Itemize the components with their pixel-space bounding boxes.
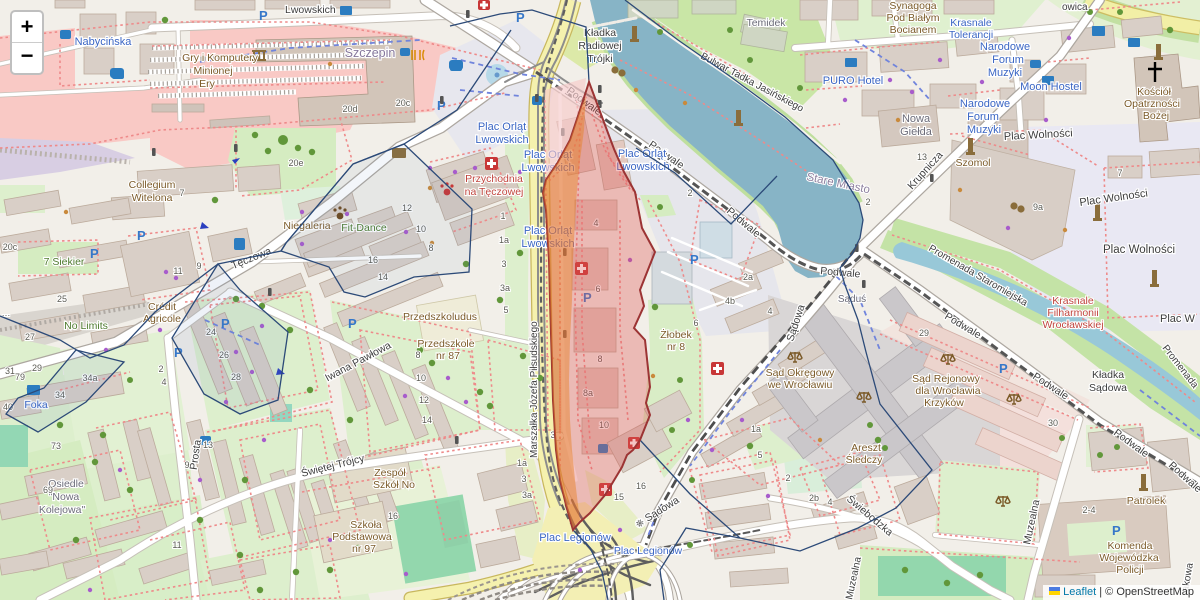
svg-text:Giełda: Giełda [900, 126, 933, 138]
svg-text:Nowa: Nowa [902, 113, 931, 125]
svg-text:30: 30 [1048, 418, 1058, 428]
svg-text:P: P [690, 252, 699, 267]
svg-text:PURO Hotel: PURO Hotel [823, 75, 884, 87]
svg-text:13: 13 [203, 440, 213, 450]
svg-text:Przychodnia: Przychodnia [465, 173, 523, 185]
svg-text:11: 11 [172, 540, 181, 550]
svg-text:73: 73 [51, 441, 61, 451]
svg-text:Areszt: Areszt [851, 442, 881, 454]
svg-text:Radiowej: Radiowej [578, 40, 621, 52]
svg-text:Plac Orląt: Plac Orląt [618, 148, 666, 160]
svg-text:29: 29 [32, 363, 42, 373]
svg-text:25: 25 [57, 294, 67, 304]
svg-text:Filharmonii: Filharmonii [1047, 307, 1098, 319]
svg-text:9: 9 [184, 460, 189, 470]
svg-text:Krasnale: Krasnale [1052, 295, 1094, 307]
svg-text:3a: 3a [522, 490, 532, 500]
svg-text:1: 1 [500, 211, 505, 221]
svg-text:Plac Orląt: Plac Orląt [478, 121, 526, 133]
svg-text:Bożej: Bożej [1143, 110, 1169, 122]
svg-text:P: P [137, 228, 146, 243]
svg-text:na Tęczowej: na Tęczowej [465, 186, 524, 198]
svg-text:7: 7 [1117, 168, 1122, 178]
svg-text:Lwowskich: Lwowskich [475, 134, 528, 146]
svg-text:Kładka: Kładka [1092, 369, 1124, 381]
svg-text:Sąd Okręgowy: Sąd Okręgowy [766, 367, 836, 379]
svg-text:9a: 9a [1033, 202, 1043, 212]
svg-text:Wojewódzka: Wojewódzka [1099, 552, 1158, 564]
svg-text:owica: owica [1062, 2, 1088, 13]
svg-text:Szkół No: Szkół No [373, 479, 415, 491]
svg-text:Narodowe: Narodowe [980, 41, 1030, 53]
svg-text:4b: 4b [725, 296, 735, 306]
svg-text:Bocianem: Bocianem [890, 24, 937, 36]
svg-text:31: 31 [5, 366, 15, 376]
svg-text:5: 5 [503, 305, 508, 315]
svg-text:dla Wrocławia: dla Wrocławia [915, 385, 980, 397]
svg-text:Przedszkoludus: Przedszkoludus [403, 311, 477, 323]
svg-text:Kościół: Kościół [1137, 86, 1172, 98]
svg-text:7: 7 [179, 188, 184, 198]
svg-text:Sądowa: Sądowa [1089, 382, 1127, 394]
svg-text:15: 15 [614, 492, 624, 502]
svg-text:Marszałka Józefa Piłsudskiego: Marszałka Józefa Piłsudskiego [529, 321, 540, 458]
svg-text:Wrocławskiej: Wrocławskiej [1042, 319, 1103, 331]
svg-text:8: 8 [415, 350, 420, 360]
svg-text:20c: 20c [3, 242, 18, 252]
svg-text:P: P [1112, 523, 1121, 538]
svg-text:Osiedle: Osiedle [48, 478, 84, 490]
svg-text:Lwowskich: Lwowskich [285, 4, 336, 16]
svg-text:69: 69 [43, 485, 53, 495]
svg-text:Moon Hostel: Moon Hostel [1020, 81, 1082, 93]
svg-text:Policji: Policji [1116, 564, 1143, 576]
svg-text:2-4: 2-4 [1082, 505, 1095, 515]
svg-text:2: 2 [865, 197, 870, 207]
svg-text:Temidek: Temidek [746, 17, 786, 29]
svg-text:4: 4 [827, 497, 832, 507]
svg-text:20c: 20c [396, 98, 411, 108]
svg-text:12: 12 [419, 395, 429, 405]
svg-text:5: 5 [757, 450, 762, 460]
svg-text:2: 2 [687, 188, 692, 198]
svg-text:16: 16 [388, 511, 398, 521]
svg-text:Plac Legionów: Plac Legionów [539, 532, 611, 544]
svg-text:Ery: Ery [199, 78, 216, 90]
svg-text:Plac W: Plac W [1160, 313, 1195, 325]
svg-text:Szczepin: Szczepin [345, 46, 396, 60]
svg-text:Minionej: Minionej [193, 65, 232, 77]
svg-text:16: 16 [636, 481, 646, 491]
svg-text:29: 29 [919, 328, 929, 338]
svg-text:Muzyki: Muzyki [967, 124, 1001, 136]
svg-text:Krasnale: Krasnale [950, 17, 992, 29]
svg-text:Kolejowa": Kolejowa" [39, 504, 86, 516]
svg-text:Szkoła: Szkoła [350, 519, 382, 531]
svg-text:P: P [999, 361, 1008, 376]
svg-text:Forum: Forum [992, 54, 1024, 66]
svg-text:20e: 20e [288, 158, 303, 168]
svg-text:14: 14 [422, 415, 432, 425]
svg-text:Tolerancji: Tolerancji [949, 29, 993, 41]
svg-text:Szomol: Szomol [955, 157, 990, 169]
svg-text:P: P [90, 246, 99, 261]
svg-text:Komenda: Komenda [1108, 540, 1153, 552]
svg-text:79: 79 [15, 372, 25, 382]
svg-text:nr 87: nr 87 [436, 350, 460, 362]
svg-text:Muzyki: Muzyki [988, 67, 1022, 79]
svg-text:Krzyków: Krzyków [924, 397, 964, 409]
svg-text:P: P [259, 8, 268, 23]
svg-text:4: 4 [767, 306, 772, 316]
svg-text:"Nowa: "Nowa [49, 491, 80, 503]
svg-text:Witelona: Witelona [132, 192, 173, 204]
svg-text:2: 2 [158, 364, 163, 374]
svg-text:Kładka: Kładka [584, 27, 616, 39]
svg-text:Żłobek: Żłobek [660, 328, 692, 341]
svg-text:Nabycińska: Nabycińska [75, 36, 133, 48]
svg-text:P: P [348, 316, 357, 331]
svg-text:3a: 3a [500, 283, 510, 293]
svg-text:we Wrocławiu: we Wrocławiu [767, 379, 833, 391]
svg-text:6: 6 [693, 318, 698, 328]
svg-text:Forum: Forum [967, 111, 999, 123]
svg-text:Przedszkole: Przedszkole [417, 338, 474, 350]
svg-text:3: 3 [521, 474, 526, 484]
svg-text:Sąd Rejonowy: Sąd Rejonowy [912, 373, 980, 385]
svg-text:10: 10 [416, 373, 426, 383]
svg-text:27: 27 [25, 332, 35, 342]
svg-text:20d: 20d [342, 104, 357, 114]
svg-text:Śledczy: Śledczy [846, 453, 884, 466]
svg-text:Trójki: Trójki [587, 53, 612, 65]
svg-text:2: 2 [785, 473, 790, 483]
svg-text:11: 11 [173, 266, 182, 276]
svg-text:2a: 2a [743, 272, 753, 282]
svg-text:2b: 2b [809, 493, 819, 503]
svg-text:Synagoga: Synagoga [889, 0, 936, 12]
svg-text:Patrolek: Patrolek [1127, 495, 1166, 507]
svg-text:nr 8: nr 8 [667, 341, 685, 353]
svg-text:9: 9 [196, 261, 201, 271]
svg-text:Opatrzności: Opatrzności [1124, 98, 1180, 110]
svg-text:7 Siekier: 7 Siekier [44, 256, 85, 268]
svg-text:Narodowe: Narodowe [960, 98, 1010, 110]
svg-text:1a: 1a [499, 235, 509, 245]
svg-text:1a: 1a [751, 424, 761, 434]
svg-text:Collegium: Collegium [129, 179, 176, 191]
svg-text:3: 3 [501, 259, 506, 269]
svg-text:Gry i Komputery: Gry i Komputery [182, 52, 259, 64]
svg-text:nr 97: nr 97 [352, 543, 376, 555]
svg-text:13: 13 [917, 152, 927, 162]
svg-text:4: 4 [161, 377, 166, 387]
svg-text:Podstawowa: Podstawowa [332, 531, 392, 543]
svg-text:Pod Białym: Pod Białym [886, 12, 939, 24]
svg-text:1a: 1a [517, 458, 527, 468]
svg-text:Zespół: Zespół [374, 467, 406, 479]
svg-text:Plac Wolności: Plac Wolności [1103, 244, 1175, 256]
svg-text:No Limits: No Limits [64, 320, 108, 332]
